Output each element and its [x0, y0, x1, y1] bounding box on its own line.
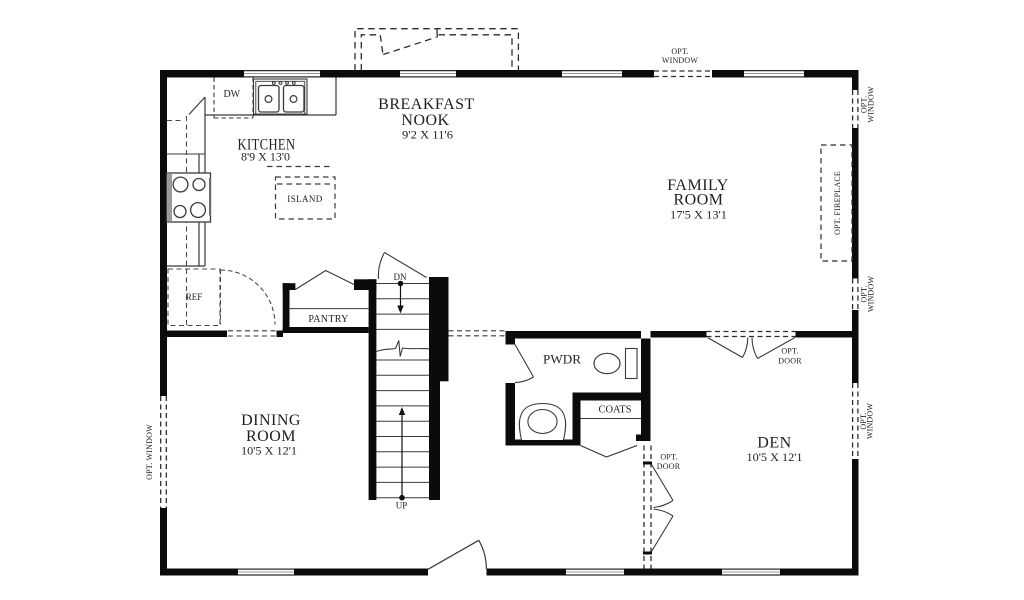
svg-text:WINDOW: WINDOW — [867, 86, 876, 123]
svg-text:REF: REF — [186, 292, 203, 302]
svg-text:DEN: DEN — [757, 435, 791, 452]
svg-text:DN: DN — [394, 272, 407, 282]
svg-text:DW: DW — [223, 89, 240, 100]
svg-text:OPT.: OPT. — [781, 347, 798, 356]
svg-text:PANTRY: PANTRY — [308, 314, 348, 325]
svg-text:WINDOW: WINDOW — [866, 403, 875, 440]
svg-text:WINDOW: WINDOW — [867, 276, 876, 313]
svg-text:UP: UP — [396, 501, 408, 511]
svg-text:17'5 X 13'1: 17'5 X 13'1 — [670, 208, 727, 222]
svg-text:OPT. WINDOW: OPT. WINDOW — [145, 424, 154, 480]
svg-text:OPT.: OPT. — [660, 453, 677, 462]
svg-text:10'5 X 12'1: 10'5 X 12'1 — [747, 450, 803, 464]
svg-text:8'9 X 13'0: 8'9 X 13'0 — [241, 150, 290, 164]
svg-text:9'2 X 11'6: 9'2 X 11'6 — [402, 128, 453, 142]
svg-text:COATS: COATS — [599, 404, 632, 415]
svg-text:NOOK: NOOK — [401, 112, 449, 129]
svg-text:OPT. FIREPLACE: OPT. FIREPLACE — [833, 171, 842, 235]
svg-text:ISLAND: ISLAND — [287, 194, 322, 204]
svg-text:DOOR: DOOR — [657, 462, 681, 471]
svg-text:DINING: DINING — [241, 412, 301, 429]
svg-text:PWDR: PWDR — [543, 351, 581, 366]
svg-text:OPT.: OPT. — [671, 47, 688, 56]
svg-text:ROOM: ROOM — [673, 192, 723, 209]
svg-text:WINDOW: WINDOW — [662, 56, 699, 65]
svg-text:10'5 X 12'1: 10'5 X 12'1 — [241, 443, 297, 457]
svg-text:DOOR: DOOR — [778, 357, 802, 366]
svg-text:BREAKFAST: BREAKFAST — [378, 96, 475, 113]
